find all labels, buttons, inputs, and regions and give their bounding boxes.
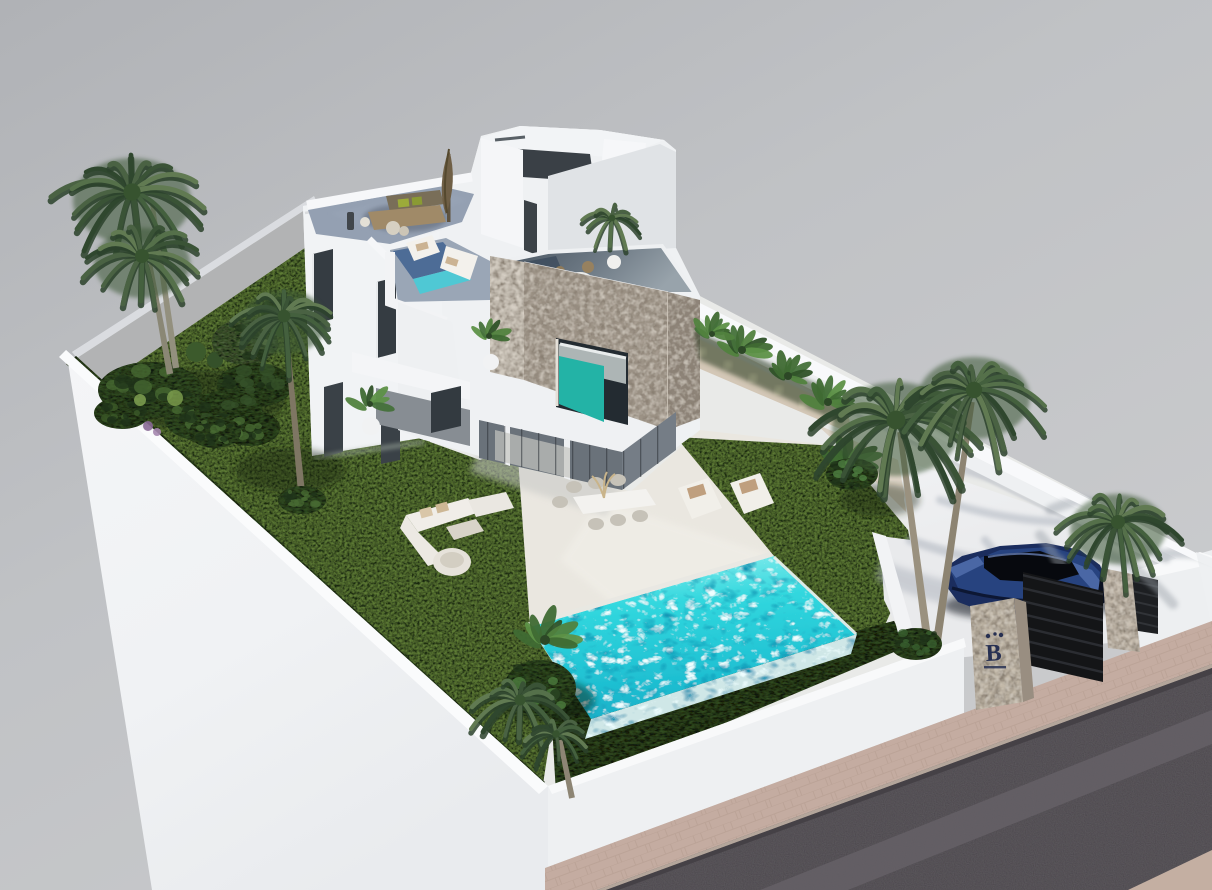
svg-text:B: B xyxy=(985,640,1002,667)
